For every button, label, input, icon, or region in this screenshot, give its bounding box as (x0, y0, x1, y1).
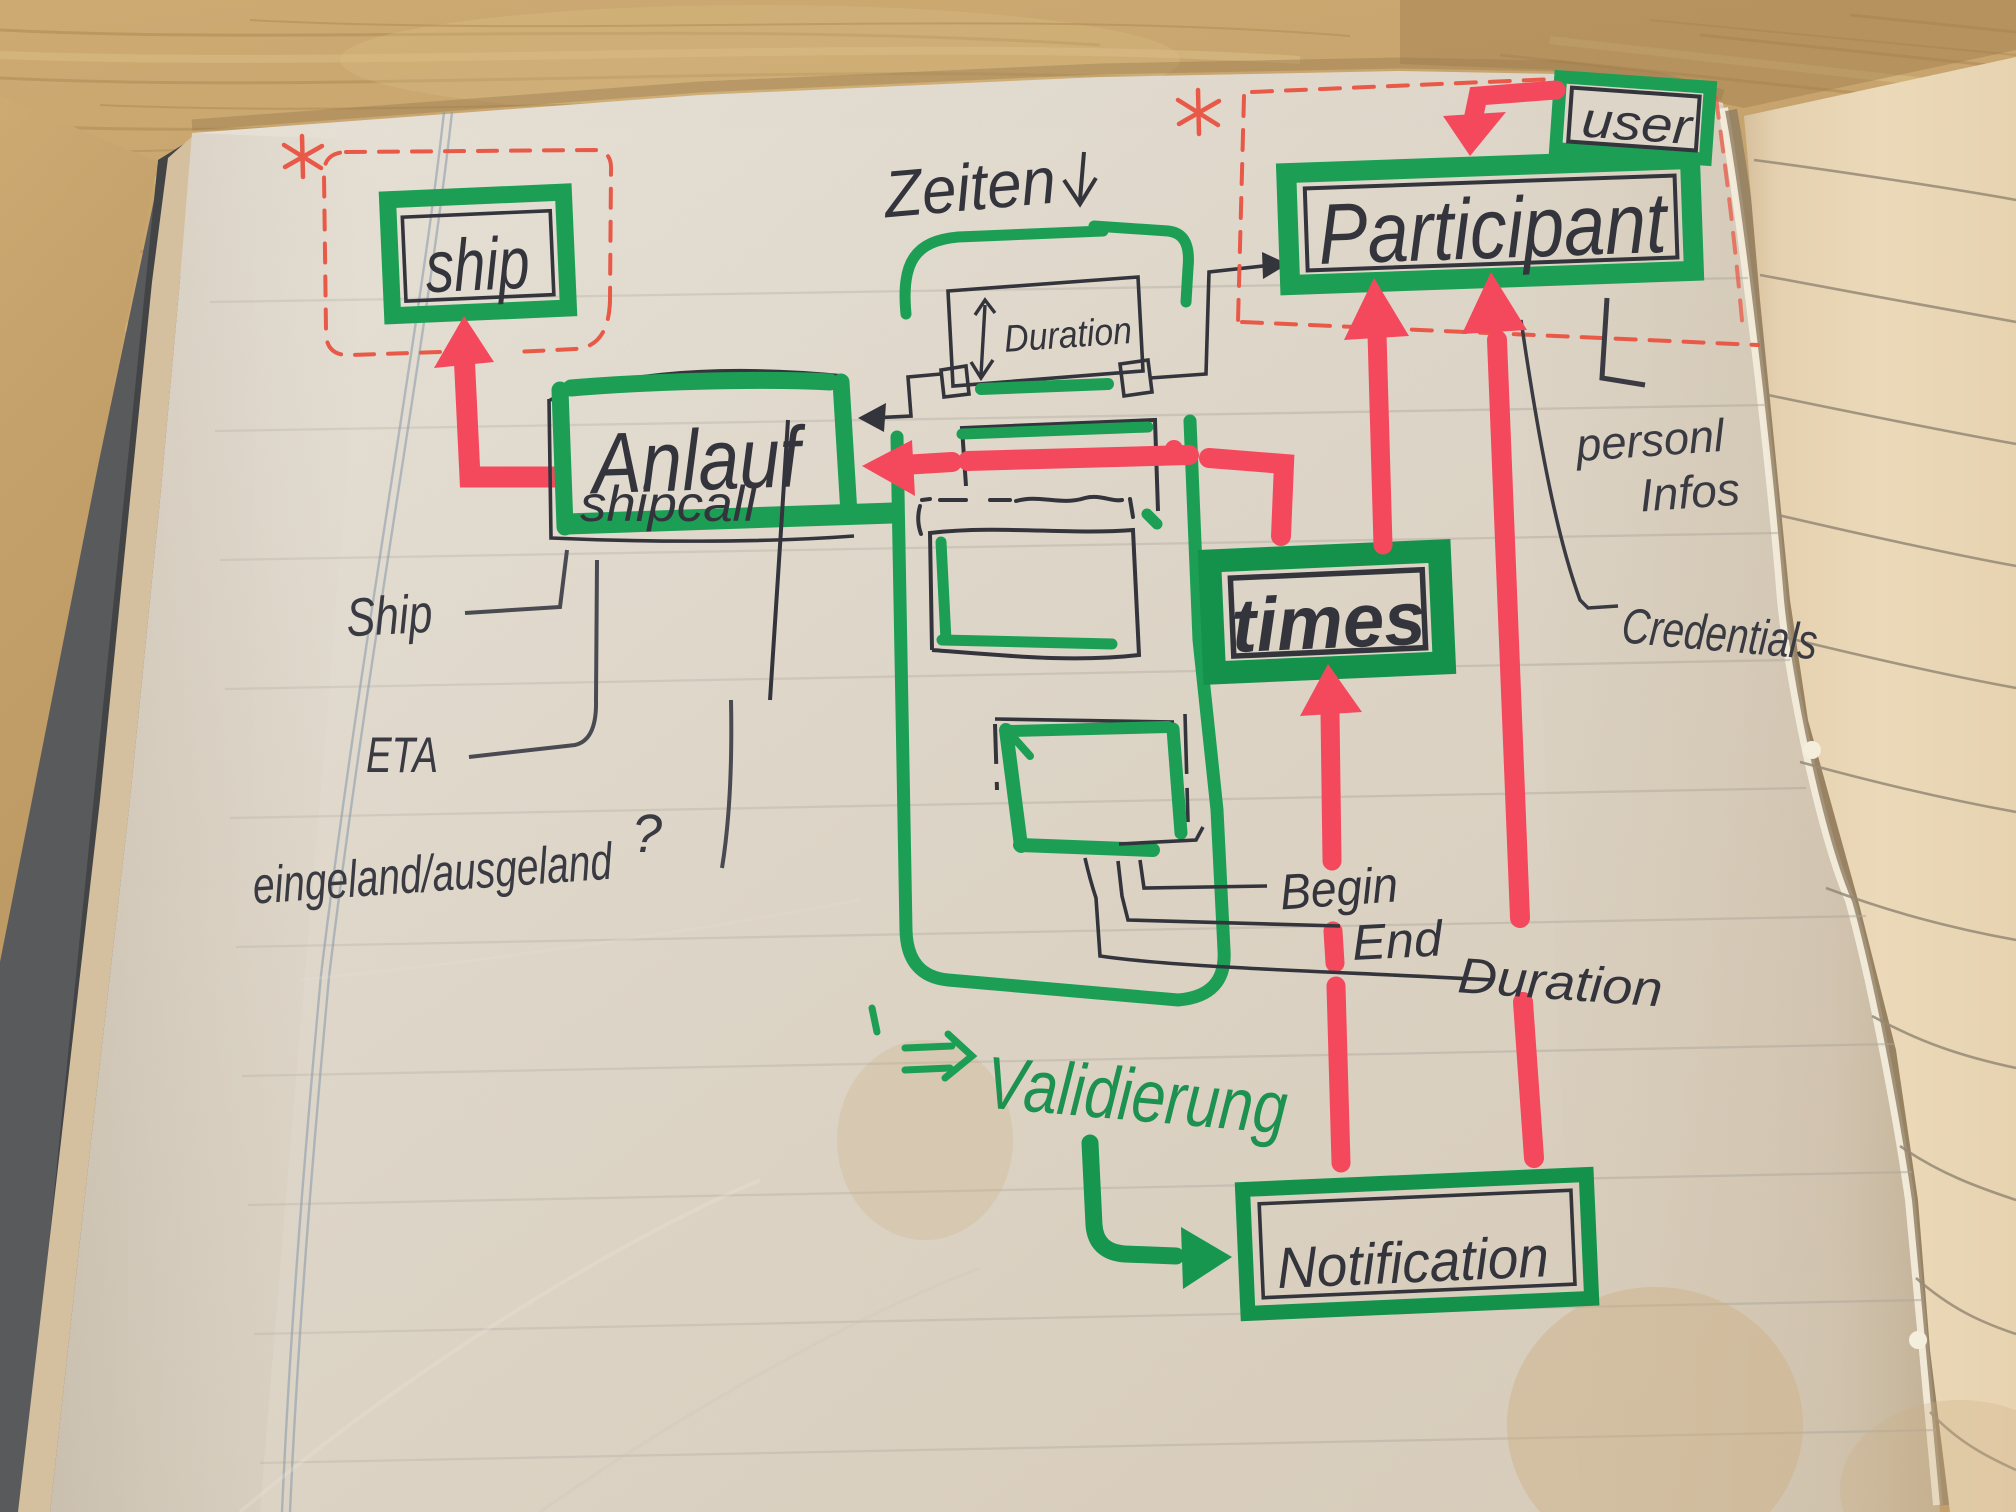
svg-text:times: times (1230, 576, 1428, 669)
svg-text:Begin: Begin (1278, 856, 1400, 920)
svg-text:Zeiten: Zeiten (879, 143, 1059, 232)
svg-text:Infos: Infos (1638, 463, 1741, 522)
svg-text:?: ? (632, 804, 662, 864)
svg-text:Ship: Ship (345, 584, 434, 648)
svg-text:Duration: Duration (1003, 310, 1134, 361)
svg-text:user: user (1580, 91, 1696, 155)
svg-text:personl: personl (1572, 409, 1727, 471)
svg-text:End: End (1351, 910, 1446, 971)
svg-text:shipcall: shipcall (580, 476, 758, 532)
svg-text:Notification: Notification (1276, 1224, 1551, 1301)
svg-text:Participant: Participant (1317, 175, 1671, 283)
svg-text:ETA: ETA (366, 727, 438, 783)
svg-text:ship: ship (424, 221, 532, 308)
